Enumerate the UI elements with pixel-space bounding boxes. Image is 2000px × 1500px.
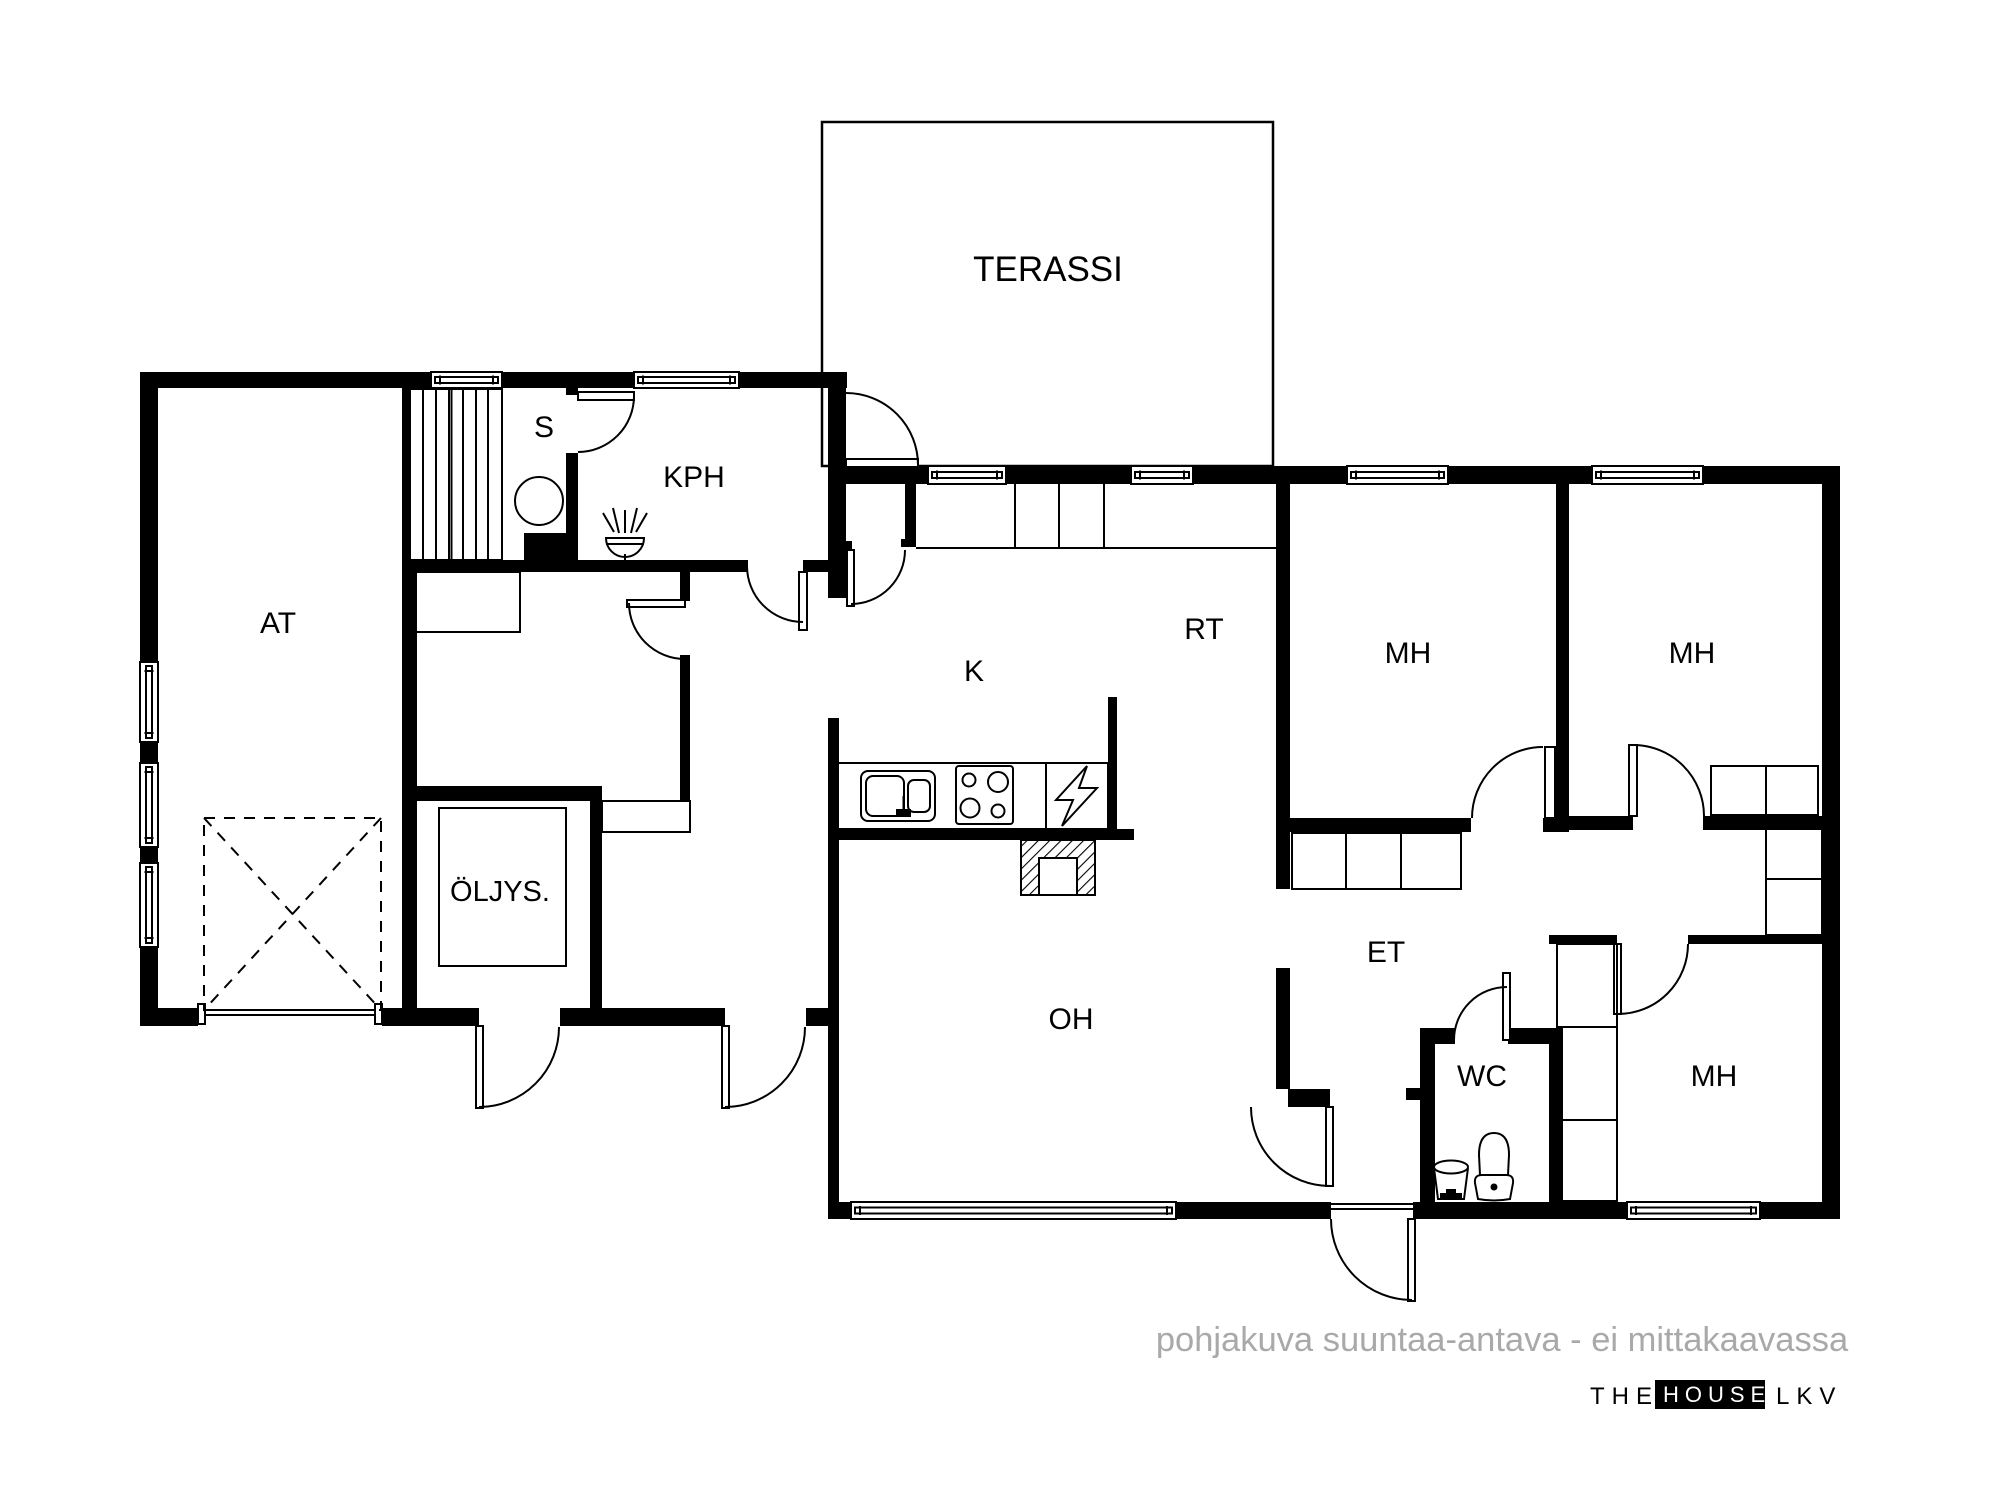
svg-text:S: S (534, 411, 554, 444)
svg-text:ÖLJYS.: ÖLJYS. (450, 876, 550, 908)
svg-text:KPH: KPH (663, 461, 725, 494)
svg-text:MH: MH (1385, 637, 1432, 670)
svg-text:THE: THE (1590, 1383, 1659, 1410)
svg-text:pohjakuva suuntaa-antava - ei: pohjakuva suuntaa-antava - ei mittakaava… (1156, 1321, 1849, 1359)
svg-text:K: K (964, 655, 984, 688)
svg-text:LKV: LKV (1776, 1383, 1842, 1410)
svg-text:AT: AT (260, 607, 296, 640)
svg-text:MH: MH (1691, 1060, 1738, 1093)
svg-text:HOUSE: HOUSE (1663, 1382, 1771, 1407)
svg-text:ET: ET (1367, 936, 1405, 969)
svg-text:RT: RT (1184, 613, 1223, 646)
svg-text:TERASSI: TERASSI (973, 250, 1123, 289)
svg-text:OH: OH (1049, 1003, 1094, 1036)
svg-text:MH: MH (1669, 637, 1716, 670)
svg-text:WC: WC (1457, 1060, 1507, 1093)
